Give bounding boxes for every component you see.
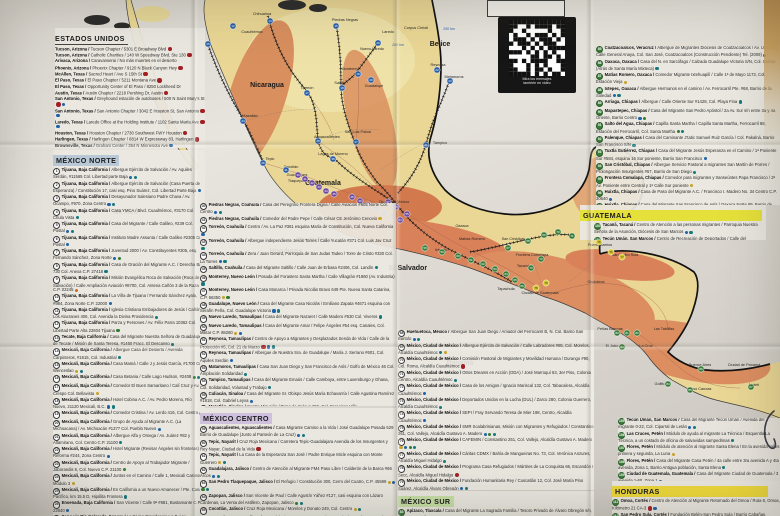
qr-cell <box>556 54 560 58</box>
qr-cell <box>561 20 565 24</box>
entry-place: Mexicali, Baja California / <box>62 410 113 415</box>
contact-icon <box>704 157 707 160</box>
qr-cell <box>526 42 530 46</box>
map-label: Torreón <box>301 86 314 90</box>
entry-number: 49 <box>200 315 207 322</box>
shelter-entry: 75México, Ciudad de México / SMR Scalabr… <box>398 425 594 437</box>
qr-cell <box>509 50 513 54</box>
qr-cell <box>535 33 539 37</box>
legend-box <box>487 0 565 17</box>
entry-number: 64 <box>200 494 207 501</box>
qr-cell <box>522 20 526 24</box>
entry-place: Tijuana, Baja California / <box>62 248 112 253</box>
entry-number: 85 <box>596 46 603 53</box>
contact-icon <box>155 316 158 319</box>
contact-icon <box>297 434 300 437</box>
entry-number: 53 <box>200 365 207 372</box>
map-marker-number: 63 <box>493 267 497 271</box>
entry-number: 4 <box>53 209 60 216</box>
entry-place: Harlingen, Texas / <box>55 137 92 142</box>
mexico-sur-list-2: 85Coatzacoalcos, Veracruz / Albergue de … <box>596 46 780 205</box>
map-label: Las Tablillas <box>654 327 675 331</box>
qr-cell <box>543 50 547 54</box>
section-mexico-norte-cont: 40Piedras Negras, Coahuila / Casa del Pe… <box>200 203 396 406</box>
section-guatemala-cont: 105Tecún Umán, San Marcos / Casa del Mig… <box>618 418 780 481</box>
contact-icon <box>219 211 222 214</box>
section-title-mexico-norte: MÉXICO NORTE <box>53 155 119 166</box>
red-marker-icon <box>157 78 161 82</box>
contact-icon <box>484 433 487 436</box>
contact-icon <box>685 231 688 234</box>
map-label: Cuauhtémoc <box>241 30 263 34</box>
entry-number: 59 <box>200 426 207 433</box>
contact-icon <box>443 460 446 463</box>
shelter-entry: 48Guadalupe, Nuevo León / Casa del Migra… <box>200 302 396 314</box>
contact-icon <box>358 508 361 511</box>
qr-cell <box>522 72 526 76</box>
contact-icon <box>375 266 378 269</box>
map-marker-number: 78 <box>534 286 538 290</box>
map-marker-number: 70 <box>556 230 560 234</box>
map-marker-number: 60 <box>456 254 460 258</box>
entry-number: 7 <box>53 249 60 256</box>
red-marker-icon <box>200 109 204 113</box>
entry-place: Piedras Negras, Coahuila / <box>209 203 263 207</box>
qr-cell <box>543 24 547 28</box>
entry-number: 48 <box>200 302 207 309</box>
map-marker-number: 77 <box>620 255 624 259</box>
shelter-entry: 62Guadalajara, Jalisco / Centro de Atenc… <box>200 467 396 479</box>
map-marker-number: 82 <box>635 331 639 335</box>
map-marker-number: 54 <box>398 218 402 222</box>
map-label: Oaxaca <box>455 224 469 228</box>
qr-cell <box>548 67 552 71</box>
shelter-entry: 25Mexicali, Baja California / En Califor… <box>53 488 205 500</box>
shelter-entry: 1Tijuana, Baja California / Albergue Ejé… <box>53 168 205 180</box>
qr-cell <box>513 50 517 54</box>
shelter-entry: 45Saltillo, Coahuila / Casa del Migrante… <box>200 266 396 273</box>
red-marker-icon <box>168 47 172 51</box>
map-label: Reynosa <box>431 63 447 67</box>
entry-number: 5 <box>53 222 60 229</box>
contact-icon <box>56 114 59 117</box>
shelter-entry: Brownsville, Texas / Graham Center / 354… <box>55 144 205 148</box>
mexico-norte-list-2: 40Piedras Negras, Coahuila / Casa del Pe… <box>200 203 396 406</box>
qr-cell <box>556 37 560 41</box>
entry-place: Mexicali, Baja California / <box>62 446 113 451</box>
entry-place: Mexicali, Baja California / <box>62 361 113 366</box>
map-marker-number: 73 <box>529 266 533 270</box>
entry-place: Phoenix, Arizona / <box>55 65 92 70</box>
entry-number: 43 <box>200 239 207 246</box>
entry-place: Flores, Petén / <box>627 458 657 463</box>
contact-icon <box>118 257 121 260</box>
entry-place: Torreón, Coahuila / <box>209 224 248 229</box>
entry-number: 104 <box>594 237 601 240</box>
contact-icon <box>295 502 298 505</box>
entry-place: Reynosa, Tamaulipas / <box>209 350 255 355</box>
mexico-norte-list: 1Tijuana, Baja California / Albergue Ejé… <box>53 168 205 516</box>
entry-number: 103 <box>594 223 601 230</box>
entry-place: Tijuana, Baja California / <box>62 235 112 240</box>
shelter-entry: 3Tijuana, Baja California / Desayunador … <box>53 195 205 207</box>
shelter-entry: 12Tijuana, Baja California / Parza y Per… <box>53 321 205 333</box>
shelter-entry: 64Zapopan, Jalisco / San Vicente de Paul… <box>200 494 396 506</box>
honduras-list: 111Omoa, Cortés / Centro de Atención al … <box>612 499 780 516</box>
qr-cell <box>526 50 530 54</box>
shelter-entry: Austin, Texas / Austin Chapter / 2218 Pe… <box>55 91 205 96</box>
map-label: Choluteca <box>587 280 605 284</box>
contact-icon <box>763 54 766 57</box>
map-marker-number: 87 <box>749 385 753 389</box>
red-marker-icon <box>56 102 60 106</box>
entry-place: México, Ciudad de México / <box>407 437 463 442</box>
qr-cell <box>535 59 539 63</box>
contact-icon <box>72 482 75 485</box>
entry-place: Oaxaca, Oaxaca / <box>605 59 641 64</box>
map-label: Ciudad de Panamá <box>728 363 761 367</box>
qr-cell <box>522 46 526 50</box>
shelter-entry: Arivaca, Arizona / Caravanserai / No más… <box>55 59 205 64</box>
entry-number: 76 <box>398 438 405 445</box>
contact-icon <box>116 329 119 332</box>
contact-icon <box>693 171 696 174</box>
contact-icon <box>107 405 110 408</box>
shelter-entry: 89Arriaga, Chiapas / Albergue / Calle Or… <box>596 100 780 107</box>
map-label: 200 km <box>391 43 404 47</box>
shelter-entry: 49Nuevo Laredo, Tamaulipas / Casa del Mi… <box>200 315 396 322</box>
guatemala-list-2: 105Tecún Umán, San Marcos / Casa del Mig… <box>618 418 780 481</box>
qr-cell <box>526 33 530 37</box>
shelter-entry: 86Oaxaca, Oaxaca / Casa del N. en Sarcóf… <box>596 60 780 72</box>
entry-number: 42 <box>200 225 207 232</box>
contact-icon <box>672 453 675 456</box>
qr-cell <box>513 24 517 28</box>
contact-icon <box>118 356 121 359</box>
shelter-entry: 17Mexicali, Baja California / Comedor El… <box>53 384 205 396</box>
contact-icon <box>404 446 407 449</box>
shelter-entry: 15Mexicali, Baja California / Casa Mamá … <box>53 362 205 374</box>
entry-number: 17 <box>53 384 60 391</box>
qr-cell <box>526 63 530 67</box>
shelter-entry: San Antonio, Texas / Greyhound estación … <box>55 97 205 107</box>
map-photo: MéxicoBeliceGuatemalaEl SalvadorHonduras… <box>0 0 780 516</box>
entry-place: Ensenada, Baja California / <box>62 500 117 505</box>
qr-cell <box>518 42 522 46</box>
section-estados-unidos: ESTADOS UNIDOS Tucson, Arizona / Tucson … <box>55 28 205 148</box>
contact-icon <box>378 217 381 220</box>
red-marker-icon <box>195 137 199 141</box>
shelter-entry: 87Matías Romero, Oaxaca / Comedor Migran… <box>596 73 780 85</box>
shelter-entry: 96Huixtla, Chiapas / Casa de Paso del Mi… <box>596 190 780 202</box>
qr-cell <box>552 20 556 24</box>
contact-icon <box>107 455 110 458</box>
entry-number: 10 <box>53 294 60 301</box>
contact-icon <box>112 203 115 206</box>
entry-number: 106 <box>618 432 625 439</box>
entry-place: Torreón, Coahuila / <box>209 238 248 243</box>
entry-number: 89 <box>596 100 603 107</box>
contact-icon <box>66 243 69 246</box>
red-marker-icon <box>455 473 459 477</box>
shelter-entry: 68Huehuetoca, México / Albergue San Juan… <box>398 330 594 342</box>
entry-number: 65 <box>200 507 207 514</box>
map-marker-number: 75 <box>597 240 601 244</box>
map-label: San Pedro Sula <box>612 253 639 257</box>
entry-number: 72 <box>398 384 405 391</box>
shelter-entry: 50Nuevo Laredo, Tamaulipas / Casa del Mi… <box>200 324 396 336</box>
contact-icon <box>731 439 734 442</box>
entry-number: 24 <box>53 474 60 481</box>
contact-icon <box>267 345 270 348</box>
map-marker-number: 83 <box>620 345 624 349</box>
entry-place: Mexicali, Baja California / <box>62 460 113 465</box>
entry-place: Torreón, Coahuila / <box>209 251 248 256</box>
entry-number: 86 <box>596 60 603 67</box>
contact-icon <box>268 386 271 389</box>
shelter-entry: 71México, Ciudad de México / Otros Dream… <box>398 371 594 383</box>
entry-place: Mexicali, Baja California / <box>62 374 113 379</box>
qr-cell <box>535 20 539 24</box>
map-label: Laredo <box>382 30 394 34</box>
entry-number: 54 <box>200 378 207 385</box>
entry-number: 91 <box>596 122 603 129</box>
entry-number: 71 <box>398 371 405 378</box>
map-marker-number: 67 <box>506 246 510 250</box>
qr-cell <box>509 63 513 67</box>
qr-cell <box>513 72 517 76</box>
contact-icon <box>409 446 412 449</box>
contact-icon <box>201 488 204 491</box>
map-marker-number: 79 <box>544 281 548 285</box>
qr-cell <box>543 54 547 58</box>
map-marker-number: 15 <box>334 24 338 28</box>
qr-cell <box>518 72 522 76</box>
entry-number: 77 <box>398 452 405 459</box>
entry-place: Coatzacoalcos, Veracruz / <box>605 46 658 50</box>
shelter-entry: 14Mexicali, Baja California / Albergue C… <box>53 348 205 360</box>
qr-cell <box>509 72 513 76</box>
shelter-entry: 111Omoa, Cortés / Centro de Atención al … <box>612 499 780 511</box>
qr-cell <box>539 59 543 63</box>
qr-cell <box>539 46 543 50</box>
contact-icon <box>399 446 402 449</box>
contact-icon <box>201 282 204 285</box>
qr-cell <box>539 20 543 24</box>
qr-cell <box>548 46 552 50</box>
map-label: Mazatlán <box>242 114 257 118</box>
map-label: San Cristóbal <box>502 237 525 241</box>
section-title-mexico-sur: MÉXICO SUR <box>398 496 454 507</box>
contact-icon <box>638 117 641 120</box>
shelter-entry: 44Torreón, Coahuila / Zera / Juan Gerard… <box>200 252 396 264</box>
contact-icon <box>96 392 99 395</box>
contact-icon <box>632 144 635 147</box>
entry-place: Ixtepec, Oaxaca / <box>605 86 640 91</box>
shelter-entry: 107Flores, Petén / Módulo de atención al… <box>618 445 780 457</box>
entry-number: 6 <box>53 236 60 243</box>
contact-icon <box>223 461 226 464</box>
entry-place: El Paso, Texas / <box>55 78 88 83</box>
contact-icon <box>609 198 612 201</box>
qr-cell <box>518 37 522 41</box>
entry-number: 9 <box>53 276 60 283</box>
entry-number: 41 <box>200 217 207 224</box>
contact-icon <box>423 419 426 422</box>
map-label: Lagos de Moreno <box>318 152 348 156</box>
shelter-entry: 105Tecún Umán, San Marcos / Casa del Mig… <box>618 418 780 430</box>
entry-place: San Pedro Sula, Cortés / <box>621 512 671 516</box>
contact-icon <box>488 433 491 436</box>
entry-number: 61 <box>200 453 207 460</box>
map-marker-number: 40 <box>296 173 300 177</box>
qr-cell <box>522 29 526 33</box>
entry-place: Nuevo Laredo, Tamaulipas / <box>209 314 265 319</box>
entry-number: 19 <box>53 411 60 418</box>
map-marker-number: 86 <box>699 367 703 371</box>
entry-place: Tecate, Baja California / <box>62 334 110 339</box>
entry-number: 22 <box>53 447 60 454</box>
contact-icon <box>624 81 627 84</box>
shelter-entry: 60Tepic, Nayarit / Cruz Roja Mexicana / … <box>200 440 396 452</box>
shelter-entry: 7Tijuana, Baja California / Juventud 200… <box>53 249 205 261</box>
red-marker-icon <box>178 66 182 70</box>
shelter-entry: 9Tijuana, Baja California / Misión Evang… <box>53 276 205 293</box>
entry-place: McAllen, Texas / <box>55 71 88 76</box>
entry-number: 94 <box>596 163 603 170</box>
entry-number: 11 <box>53 308 60 315</box>
contact-icon <box>158 428 161 431</box>
entry-place: Reynosa, Tamaulipas / <box>209 336 255 341</box>
entry-place: Guadalajara, Jalisco / <box>209 466 253 471</box>
entry-place: Ciudad de Guatemala, Guatemala / <box>627 471 697 476</box>
contact-icon <box>689 231 692 234</box>
contact-icon <box>124 495 127 498</box>
qr-cell <box>535 54 539 58</box>
shelter-entry: 69México, Ciudad de México / Albergue Ej… <box>398 344 594 356</box>
entry-place: Brownsville, Texas / <box>55 143 96 148</box>
section-honduras: HONDURAS 111Omoa, Cortés / Centro de Ate… <box>612 481 780 516</box>
entry-number: 111 <box>612 499 619 506</box>
contact-icon <box>239 332 242 335</box>
contact-icon <box>302 434 305 437</box>
map-label: Belice <box>430 41 451 48</box>
entry-place: Huehuetoca, México / <box>407 330 451 334</box>
red-marker-icon <box>187 53 191 57</box>
entry-place: Aguascalientes, Aguascalientes / <box>209 425 276 430</box>
entry-place: Tacaná, Tacaná / <box>603 222 637 227</box>
shelter-entry: El Paso, Texas / El Paso Chapter / 5211 … <box>55 78 205 83</box>
qr-cell <box>548 42 552 46</box>
entry-place: Tucson, Arizona / <box>55 52 91 57</box>
map-label: Tapachula <box>497 287 515 291</box>
contact-icon <box>613 94 616 97</box>
entry-number: 75 <box>398 425 405 432</box>
entry-number: 83 <box>398 509 405 516</box>
entry-place: Mexicali, Baja California / <box>62 419 113 424</box>
shelter-entry: 77México, Ciudad de México / Cáritas CDM… <box>398 452 594 464</box>
qr-cell <box>552 46 556 50</box>
map-marker-number: 29 <box>376 41 380 45</box>
contact-icon <box>112 405 115 408</box>
qr-cell <box>552 72 556 76</box>
entry-number: 47 <box>200 288 207 295</box>
shelter-entry: 20Mexicali, Baja California / Grupo de A… <box>53 420 205 432</box>
entry-number: 13 <box>53 335 60 342</box>
entry-place: Las Cruces, Petén / <box>627 431 667 436</box>
qr-cell <box>543 63 547 67</box>
map-marker-number: 22 <box>435 68 439 72</box>
shelter-entry: 16Mexicali, Baja California / Casa Betan… <box>53 375 205 382</box>
qr-cell <box>561 24 565 28</box>
entry-place: Tijuana, Baja California / <box>62 307 112 312</box>
qr-cell <box>518 50 522 54</box>
entry-place: Tijuana, Baja California / <box>62 275 112 280</box>
shelter-entry: 85Coatzacoalcos, Veracruz / Albergue de … <box>596 46 780 58</box>
entry-place: San Cristóbal, Chiapas / <box>605 162 654 167</box>
qr-cell <box>531 37 535 41</box>
entry-number: 73 <box>398 398 405 405</box>
qr-cell <box>535 42 539 46</box>
contact-icon <box>739 100 742 103</box>
shelter-entry: 4Tijuana, Baja California / Casa YMCA / … <box>53 209 205 221</box>
entry-number: 14 <box>53 348 60 355</box>
map-marker-number: 20 <box>369 78 373 82</box>
qr-cell <box>522 59 526 63</box>
shelter-entry: El Paso, Texas / Opportunity Center of E… <box>55 85 205 90</box>
contact-icon <box>226 296 229 299</box>
entry-place: México, Ciudad de México / <box>407 370 463 375</box>
contact-icon <box>454 379 457 382</box>
mexico-centro-list: 59Aguascalientes, Aguascalientes / Casa … <box>200 426 396 516</box>
contact-icon <box>222 296 225 299</box>
qr-cell <box>548 20 552 24</box>
entry-place: San Pedro Tlaquepaque, Jalisco / <box>209 479 277 484</box>
map-marker-number: 62 <box>481 262 485 266</box>
contact-icon <box>123 468 126 471</box>
entry-place: México, Ciudad de México / <box>407 356 463 361</box>
contact-icon <box>300 502 303 505</box>
qr-cell <box>513 33 517 37</box>
shelter-entry: 94San Cristóbal, Chiapas / Albergue Serv… <box>596 163 780 175</box>
map-marker-number: 17 <box>305 91 309 95</box>
mexico-sur-list: 83Apizaco, Tlaxcala / Casa del Migrante … <box>398 509 594 516</box>
qr-cell <box>552 33 556 37</box>
entry-place: Tuxtla Gutiérrez, Chiapas / <box>605 148 659 153</box>
shelter-entry: 19Mexicali, Baja California / Comedor Cr… <box>53 411 205 418</box>
entry-place: Tecún Umán, San Marcos / <box>627 418 681 422</box>
entry-number: 1 <box>53 168 60 175</box>
map-marker-number: 55 <box>405 212 409 216</box>
entry-place: Tijuana, Baja California / <box>62 320 112 325</box>
shelter-entry: 10Tijuana, Baja California / La Viña de … <box>53 294 205 306</box>
qr-cell <box>513 59 517 63</box>
qr-cell <box>556 72 560 76</box>
contact-icon <box>722 466 725 469</box>
shelter-entry: 46Monterrey, Nuevo León / Posada del For… <box>200 275 396 287</box>
shelter-entry: 5Tijuana, Baja California / Casa del Mig… <box>53 222 205 234</box>
shelter-entry: Phoenix, Arizona / Phoenix Chapter / 912… <box>55 66 205 71</box>
contact-icon <box>388 481 391 484</box>
entry-place: Monterrey, Nuevo León / <box>209 287 259 292</box>
map-label: Corpus Christi <box>404 26 428 30</box>
shelter-entry: Houston, Texas / Houston Chapter / 2730 … <box>55 131 205 136</box>
map-label: Chihuahua <box>253 12 272 16</box>
entry-number: 16 <box>53 375 60 382</box>
shelter-entry: 26Ensenada, Baja California / San Vicent… <box>53 501 205 513</box>
entry-place: Tepic, Nayarit / <box>209 452 240 457</box>
qr-cell <box>531 54 535 58</box>
